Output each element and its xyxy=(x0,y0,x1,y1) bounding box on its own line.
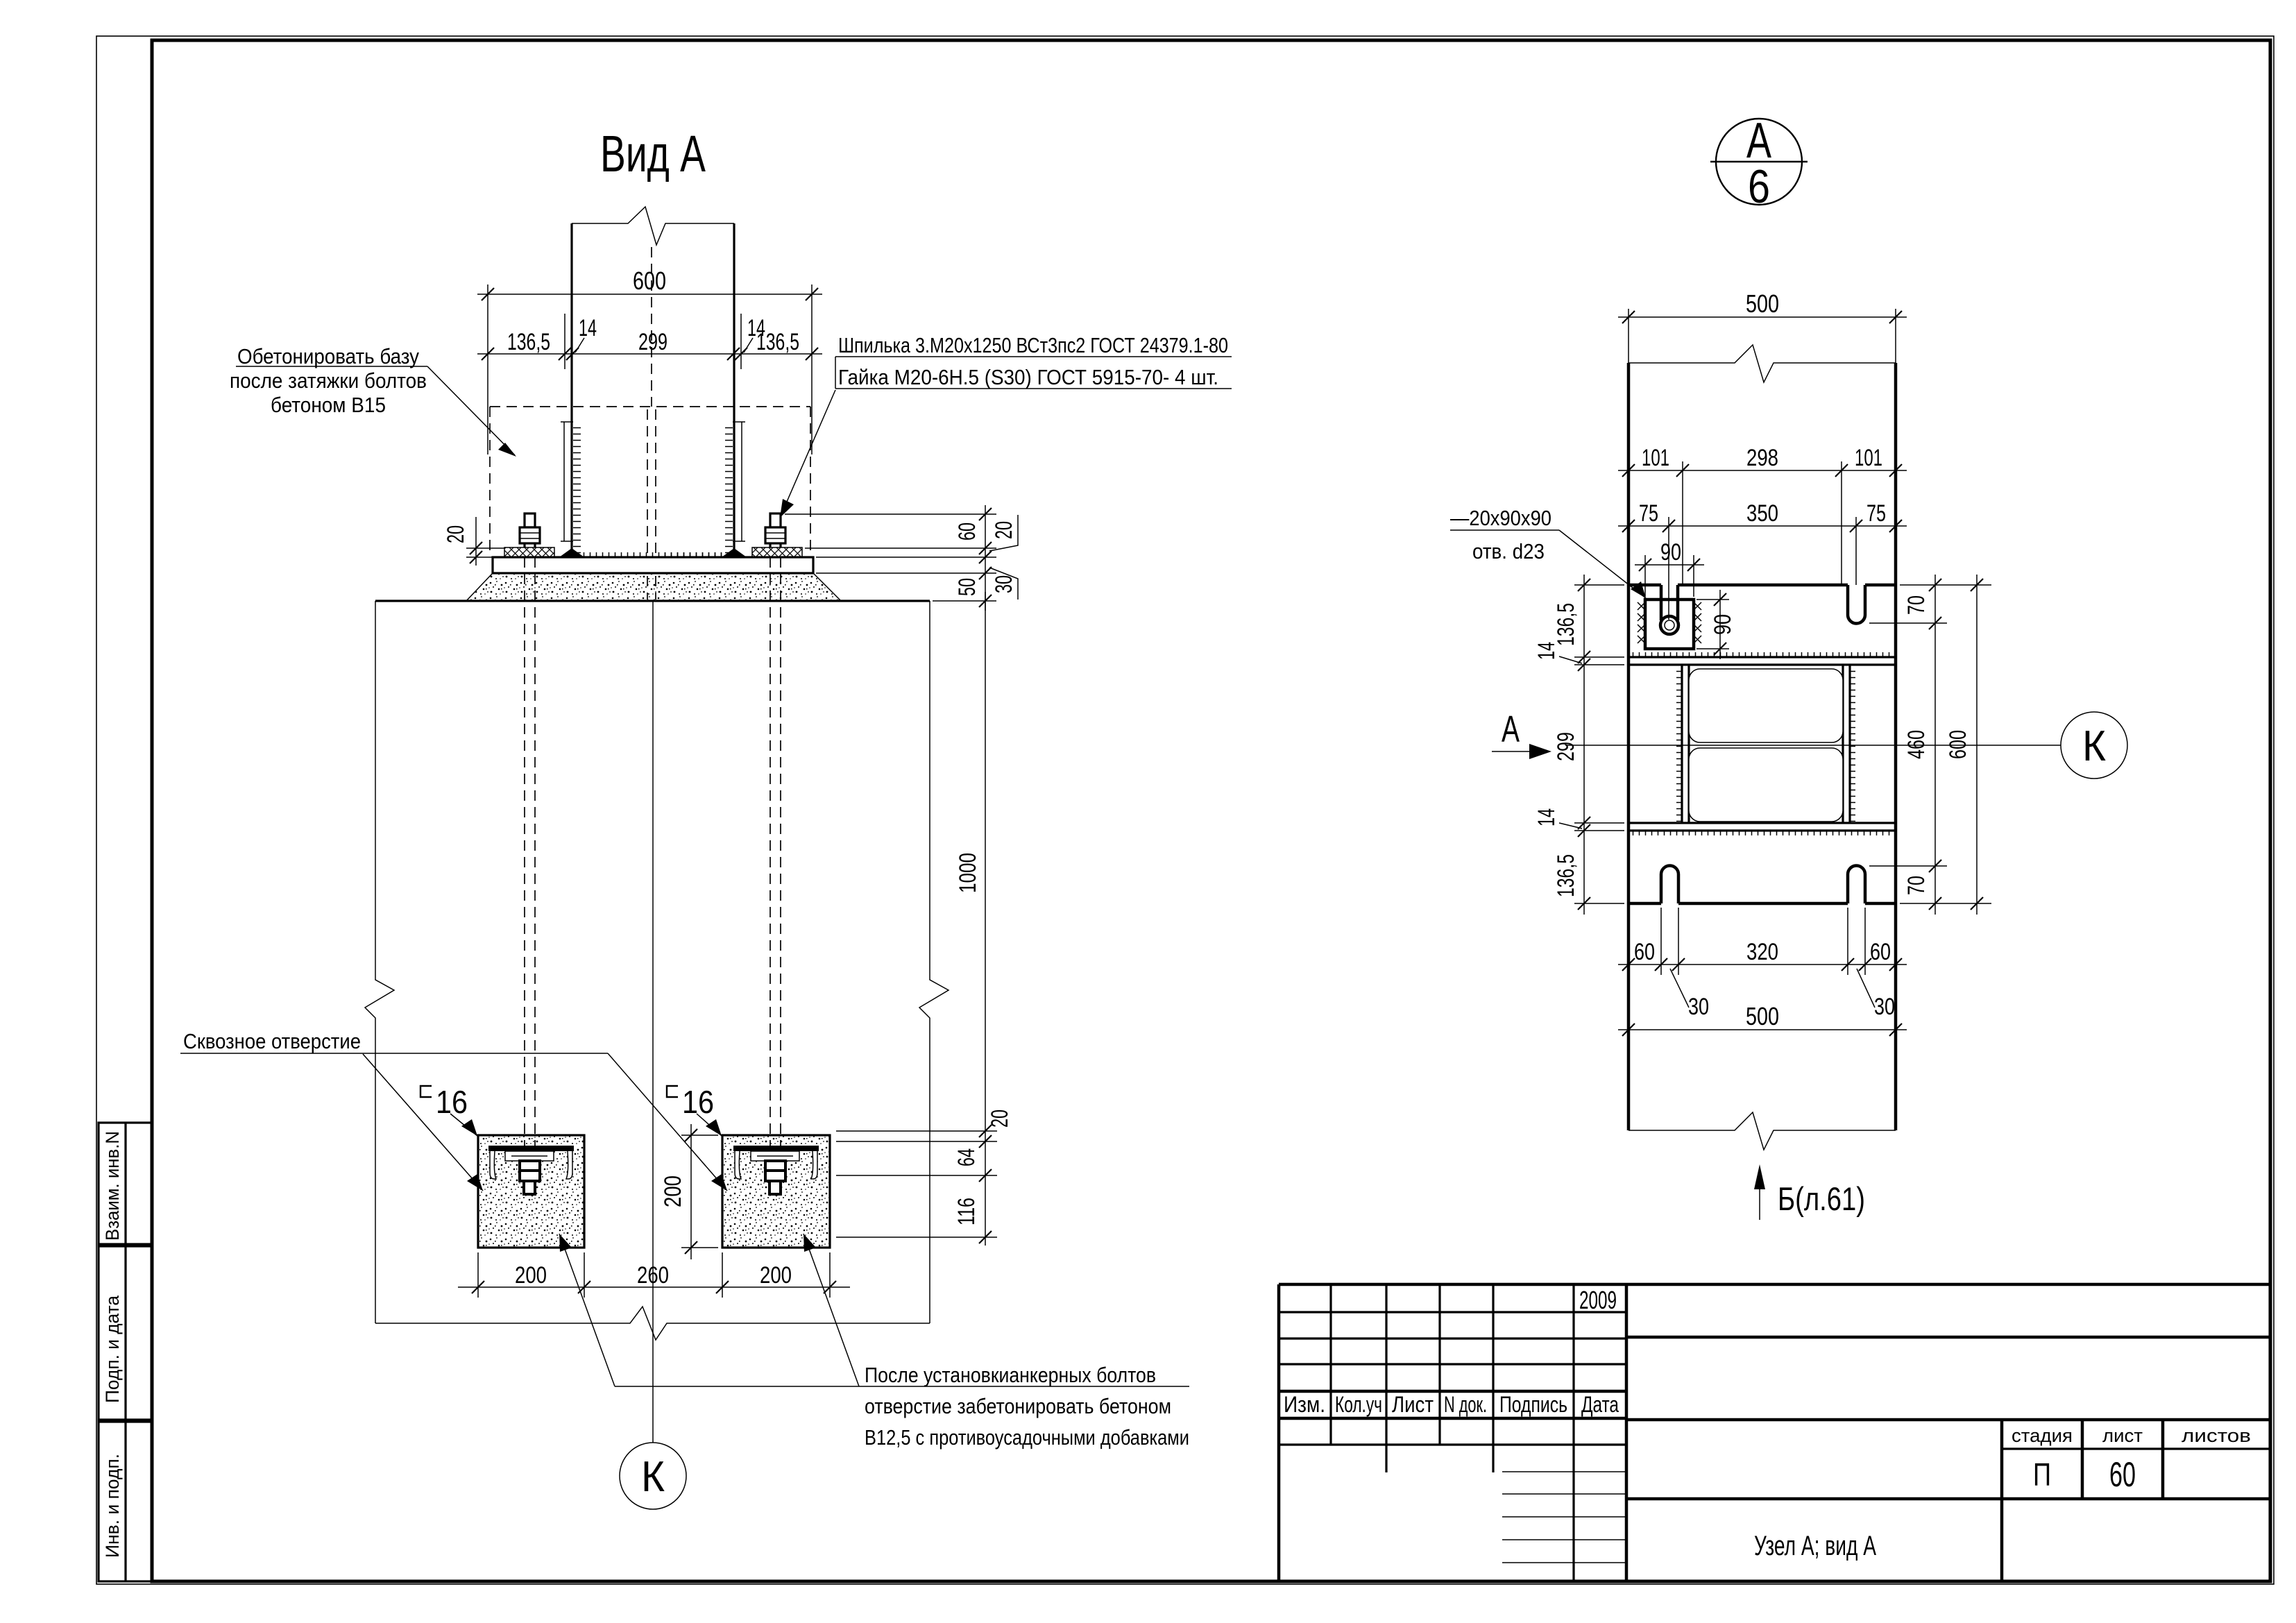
svg-text:Инв. и подп.: Инв. и подп. xyxy=(102,1454,123,1558)
svg-text:600: 600 xyxy=(1945,730,1971,759)
svg-text:60: 60 xyxy=(1870,939,1891,965)
svg-text:299: 299 xyxy=(638,329,667,355)
svg-text:75: 75 xyxy=(1639,500,1658,527)
svg-text:Изм.: Изм. xyxy=(1284,1392,1325,1417)
svg-text:30: 30 xyxy=(1688,994,1709,1020)
svg-text:после затяжки болтов: после затяжки болтов xyxy=(230,368,427,393)
svg-text:Обетонировать базу: Обетонировать базу xyxy=(237,344,419,368)
svg-text:299: 299 xyxy=(1553,732,1579,761)
svg-text:320: 320 xyxy=(1746,939,1778,965)
svg-text:70: 70 xyxy=(1903,876,1930,895)
svg-text:П: П xyxy=(2033,1456,2051,1493)
svg-text:Узел А; вид А: Узел А; вид А xyxy=(1754,1531,1876,1561)
svg-text:30: 30 xyxy=(1874,994,1895,1020)
svg-text:136,5: 136,5 xyxy=(507,329,550,355)
svg-text:Подп. и дата: Подп. и дата xyxy=(102,1295,123,1403)
svg-text:50: 50 xyxy=(954,578,980,596)
svg-text:20: 20 xyxy=(991,521,1017,539)
svg-text:136,5: 136,5 xyxy=(1553,854,1579,897)
svg-text:30: 30 xyxy=(991,575,1017,593)
svg-text:116: 116 xyxy=(953,1198,980,1225)
svg-text:350: 350 xyxy=(1746,500,1778,527)
svg-text:2009: 2009 xyxy=(1579,1286,1617,1314)
svg-text:В12,5 с противоусадочными доба: В12,5 с противоусадочными добавками xyxy=(865,1425,1189,1450)
svg-text:Гайка М20-6Н.5 (S30) ГОСТ 5915: Гайка М20-6Н.5 (S30) ГОСТ 5915-70- 4 шт. xyxy=(838,365,1218,389)
svg-text:N док.: N док. xyxy=(1444,1392,1487,1417)
svg-text:90: 90 xyxy=(1710,614,1736,635)
svg-text:отв. d23: отв. d23 xyxy=(1472,539,1545,563)
svg-text:Взаим. инв.N: Взаим. инв.N xyxy=(102,1131,123,1241)
svg-text:60: 60 xyxy=(2109,1455,2136,1494)
svg-text:—20x90x90: —20x90x90 xyxy=(1450,506,1551,530)
svg-text:Дата: Дата xyxy=(1581,1392,1619,1417)
svg-text:Б(л.61): Б(л.61) xyxy=(1778,1180,1865,1217)
svg-text:260: 260 xyxy=(637,1262,669,1289)
svg-text:90: 90 xyxy=(1660,539,1681,566)
svg-text:лист: лист xyxy=(2102,1425,2143,1446)
svg-text:К: К xyxy=(2082,722,2106,770)
svg-text:14: 14 xyxy=(1533,808,1560,826)
svg-text:75: 75 xyxy=(1866,500,1886,527)
svg-text:101: 101 xyxy=(1855,445,1882,471)
svg-text:стадия: стадия xyxy=(2012,1425,2073,1446)
svg-text:298: 298 xyxy=(1746,445,1778,471)
svg-text:14: 14 xyxy=(747,315,765,341)
svg-text:500: 500 xyxy=(1746,1002,1779,1030)
svg-text:Вид А: Вид А xyxy=(600,125,706,182)
svg-text:К: К xyxy=(641,1453,665,1501)
svg-text:6: 6 xyxy=(1748,160,1770,213)
svg-text:После установкианкерных болтов: После установкианкерных болтов xyxy=(865,1363,1156,1387)
svg-text:136,5: 136,5 xyxy=(1553,603,1579,646)
svg-text:200: 200 xyxy=(515,1262,547,1289)
svg-text:200: 200 xyxy=(660,1175,686,1207)
svg-text:60: 60 xyxy=(954,522,980,541)
svg-text:20: 20 xyxy=(987,1110,1013,1128)
svg-text:460: 460 xyxy=(1903,730,1930,759)
svg-text:Кол.уч: Кол.уч xyxy=(1335,1392,1382,1417)
svg-text:листов: листов xyxy=(2182,1425,2251,1446)
svg-text:20: 20 xyxy=(443,525,469,543)
svg-text:70: 70 xyxy=(1903,595,1930,615)
svg-text:64: 64 xyxy=(953,1148,980,1166)
svg-text:бетоном В15: бетоном В15 xyxy=(271,393,386,417)
svg-text:101: 101 xyxy=(1642,445,1669,471)
svg-text:600: 600 xyxy=(633,266,666,295)
svg-text:500: 500 xyxy=(1746,289,1779,318)
svg-text:Сквозное отверстие: Сквозное отверстие xyxy=(183,1029,361,1053)
svg-text:1000: 1000 xyxy=(955,853,981,893)
svg-text:Шпилька 3.М20х1250 ВСт3пс2 ГОС: Шпилька 3.М20х1250 ВСт3пс2 ГОСТ 24379.1-… xyxy=(838,333,1228,357)
svg-text:Лист: Лист xyxy=(1392,1392,1434,1417)
svg-text:14: 14 xyxy=(1533,642,1560,660)
svg-text:14: 14 xyxy=(579,315,597,341)
svg-text:60: 60 xyxy=(1634,939,1655,965)
svg-text:Подпись: Подпись xyxy=(1499,1392,1567,1417)
svg-text:200: 200 xyxy=(760,1262,792,1289)
svg-text:отверстие забетонировать бетон: отверстие забетонировать бетоном xyxy=(865,1394,1171,1418)
svg-text:А: А xyxy=(1502,708,1520,750)
